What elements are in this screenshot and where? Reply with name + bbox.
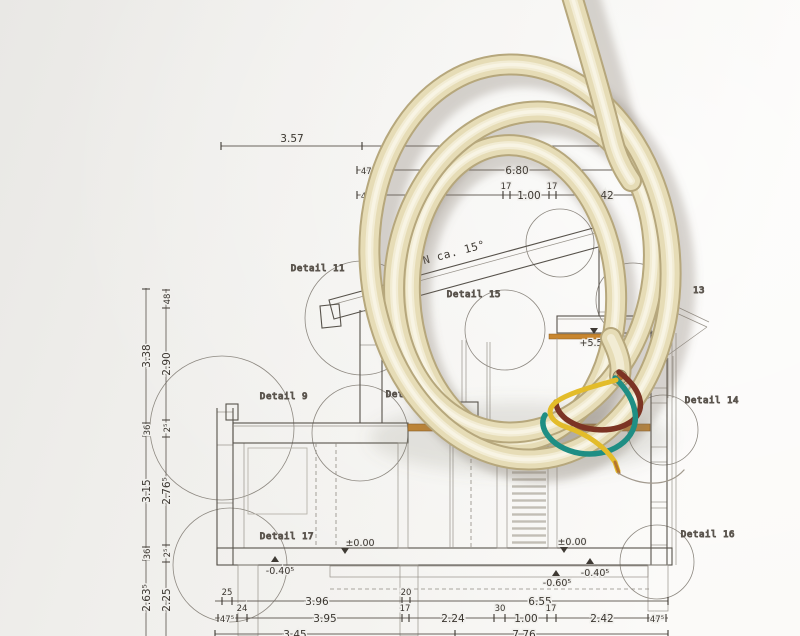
detail-label-14: Detail 14 [685, 396, 739, 406]
dim-label: 24 [237, 604, 248, 614]
dim-label: 30 [495, 604, 506, 614]
dim-label: 2.76⁵ [161, 477, 173, 505]
detail-label-17: Detail 17 [260, 532, 314, 542]
level-label: ±0.00 [557, 537, 586, 548]
detail-label-15: Detail 15 [447, 290, 501, 300]
dim-label: 2⁵ [163, 549, 173, 558]
level-label: ±0.00 [345, 538, 374, 549]
dim-label: 2.63⁵ [141, 584, 153, 612]
dim-label: 3.15 [141, 479, 153, 502]
detail-label-16: Detail 16 [681, 530, 735, 540]
level-label: -0.60⁵ [543, 578, 572, 589]
dim-label: 47⁵ [220, 615, 234, 625]
dim-label: 1.00 [514, 613, 537, 625]
dim-label: 20 [401, 588, 412, 598]
detail-label-9: Detail 9 [260, 392, 308, 402]
detail-label-11: Detail 11 [291, 264, 345, 274]
dim-label: 2.25 [161, 588, 173, 611]
dim-label: 47⁵ [650, 615, 664, 625]
photo-architectural-section-with-cable: 3.57 47⁵ 6.80 47⁵ 17 1.00 17 2.42 25 3.9… [0, 0, 800, 636]
dim-label: 17 [547, 182, 558, 192]
dim-label: 2.90 [161, 352, 173, 375]
level-label: -0.40⁵ [581, 568, 610, 579]
dim-label: 1.00 [517, 190, 540, 202]
dim-label: 3.38 [141, 344, 153, 367]
dim-label: 48 [163, 294, 173, 305]
dim-label: 3.57 [280, 133, 303, 145]
dim-label: 3.96 [305, 596, 329, 608]
dim-label: 25 [222, 588, 233, 598]
dim-label: 17 [501, 182, 512, 192]
dim-label: 7.76 [512, 629, 536, 636]
dim-label: 36 [143, 549, 153, 560]
dim-label: 36 [143, 425, 153, 436]
level-label: -0.40⁵ [266, 566, 295, 577]
dim-label: 3.45 [283, 629, 306, 636]
dim-label: 3.95 [313, 613, 336, 625]
dim-label: 17 [546, 604, 557, 614]
dim-label: 17 [400, 604, 411, 614]
dim-label: 2.42 [590, 613, 613, 625]
dim-label: 2.24 [441, 613, 465, 625]
dim-label: 2⁵ [163, 424, 173, 433]
